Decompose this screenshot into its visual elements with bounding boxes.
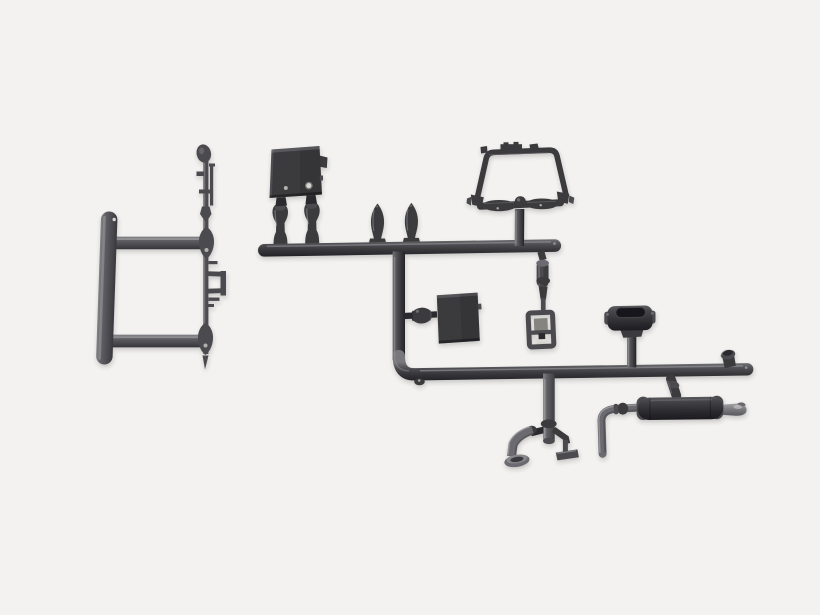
tab <box>209 261 218 264</box>
background <box>0 0 820 615</box>
hole <box>540 204 542 206</box>
cross-tab <box>199 190 212 194</box>
collar <box>536 260 549 267</box>
hole <box>204 344 208 348</box>
shading <box>460 293 480 342</box>
window-upper <box>534 318 548 331</box>
box-hole <box>306 183 311 188</box>
highlight-dot <box>416 310 419 313</box>
collar <box>536 277 550 285</box>
top-opening <box>616 307 646 317</box>
highlight-dot <box>376 206 378 208</box>
clamp-arm-bottom <box>207 288 225 293</box>
highlight-dot <box>553 242 556 245</box>
lug-dot <box>606 313 609 316</box>
lug-dot <box>651 312 654 315</box>
center-tab <box>538 333 545 339</box>
tank-bump <box>478 304 482 310</box>
side-rod <box>210 166 213 206</box>
highlight <box>112 238 206 240</box>
tab <box>197 172 204 177</box>
hole <box>205 248 209 252</box>
box-stub <box>276 197 288 206</box>
highlight-dot <box>745 366 748 369</box>
box-tab <box>320 156 328 169</box>
highlight <box>734 405 743 409</box>
sprue-photo <box>0 0 820 615</box>
photo-stage <box>0 0 820 615</box>
tab <box>206 304 214 307</box>
spreader-pod <box>482 200 516 211</box>
coupling-ring <box>617 403 628 415</box>
center-ball <box>515 196 526 207</box>
gate-nub <box>414 378 425 385</box>
box-stub <box>306 195 318 204</box>
box-hole <box>284 186 288 190</box>
highlight-dot <box>113 218 116 221</box>
coupling-band <box>614 404 619 415</box>
stub <box>541 252 543 261</box>
highlight-dot <box>418 379 420 381</box>
highlight <box>650 399 712 400</box>
highlight <box>199 147 204 154</box>
cylinder-cap <box>543 438 555 444</box>
hole <box>497 207 499 209</box>
tab <box>209 164 215 167</box>
tab <box>209 298 220 301</box>
highlight-dot <box>517 198 520 201</box>
box-bump <box>320 176 323 181</box>
top-notch <box>504 142 509 145</box>
spreader-pod <box>526 199 558 210</box>
top-notch <box>514 142 519 145</box>
highlight <box>108 336 204 338</box>
